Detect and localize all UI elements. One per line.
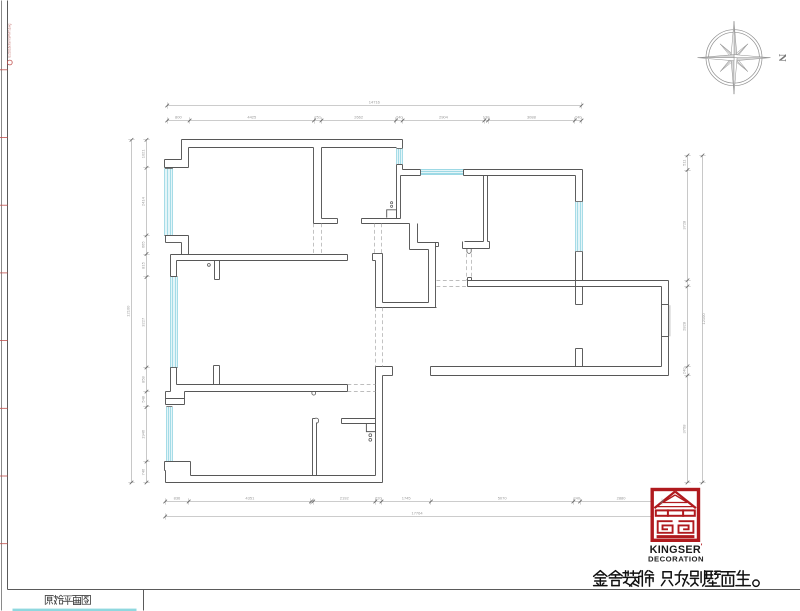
svg-text:12100: 12100 [701,313,706,325]
svg-text:3088: 3088 [527,115,537,120]
svg-text:251: 251 [314,115,321,120]
svg-text:240: 240 [396,115,403,120]
svg-text:N: N [776,54,788,62]
svg-text:548: 548 [141,395,146,402]
svg-text:17764: 17764 [411,511,423,516]
svg-text:2904: 2904 [439,115,449,120]
svg-text:2192: 2192 [340,496,350,501]
svg-text:858: 858 [141,375,146,382]
svg-text:220: 220 [375,496,382,501]
svg-text:1745: 1745 [402,496,412,501]
svg-text:DECORATION: DECORATION [648,555,704,564]
svg-text:800: 800 [175,115,182,120]
svg-text:2414: 2414 [141,196,146,206]
svg-text:511: 511 [682,159,687,166]
svg-text:2662: 2662 [354,115,364,120]
svg-text:3227: 3227 [141,317,146,327]
svg-text:836: 836 [174,496,181,501]
svg-text:14716: 14716 [369,100,381,105]
svg-text:1021: 1021 [141,149,146,159]
svg-text:3728: 3728 [682,220,687,230]
svg-text:240: 240 [682,367,687,374]
svg-text:665: 665 [141,241,146,248]
svg-text:815: 815 [141,261,146,268]
svg-text:5070: 5070 [498,496,508,501]
svg-text:240: 240 [575,115,582,120]
svg-text:1946: 1946 [141,429,146,439]
svg-text:4351: 4351 [245,496,255,501]
svg-text:240: 240 [573,496,580,501]
svg-text:4425: 4425 [247,115,257,120]
svg-text:E:/2016/JS/YSPMT.dwg: E:/2016/JS/YSPMT.dwg [8,23,12,57]
svg-text:130: 130 [483,115,490,120]
svg-text:2880: 2880 [617,496,627,501]
svg-text:746: 746 [141,468,146,475]
svg-text:3768: 3768 [682,424,687,434]
svg-text:2828: 2828 [682,321,687,331]
svg-text:12100: 12100 [126,305,131,317]
